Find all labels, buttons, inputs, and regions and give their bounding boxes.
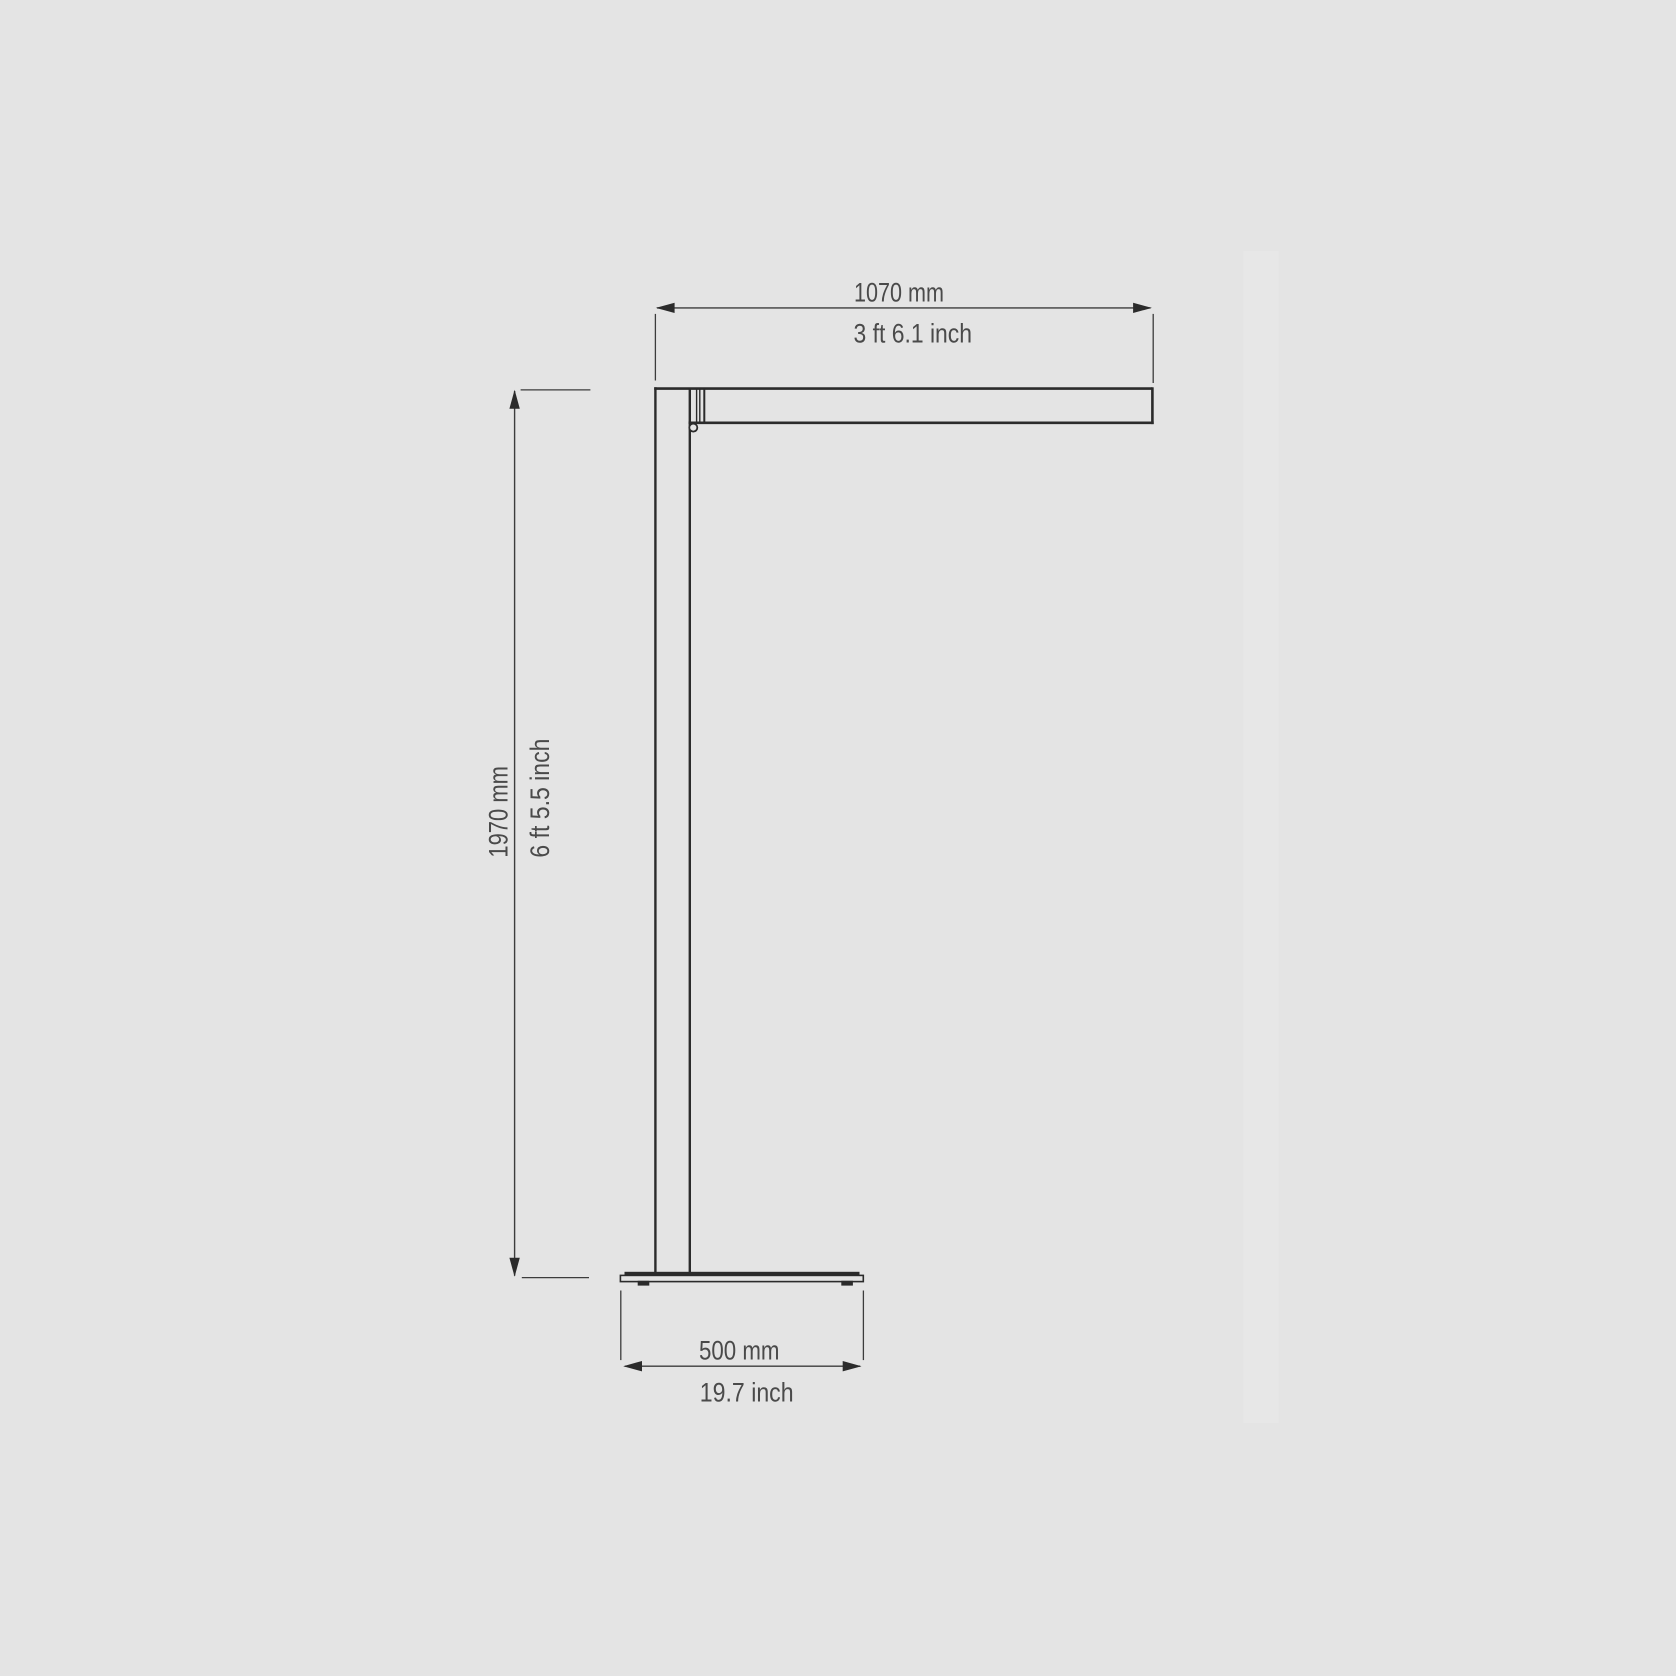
svg-text:1070 mm: 1070 mm xyxy=(854,278,944,308)
svg-text:1970 mm: 1970 mm xyxy=(484,766,514,858)
svg-text:19.7 inch: 19.7 inch xyxy=(700,1378,794,1408)
svg-text:6 ft 5.5 inch: 6 ft 5.5 inch xyxy=(525,739,555,858)
svg-text:500 mm: 500 mm xyxy=(699,1335,780,1365)
svg-text:3 ft 6.1 inch: 3 ft 6.1 inch xyxy=(854,318,973,348)
